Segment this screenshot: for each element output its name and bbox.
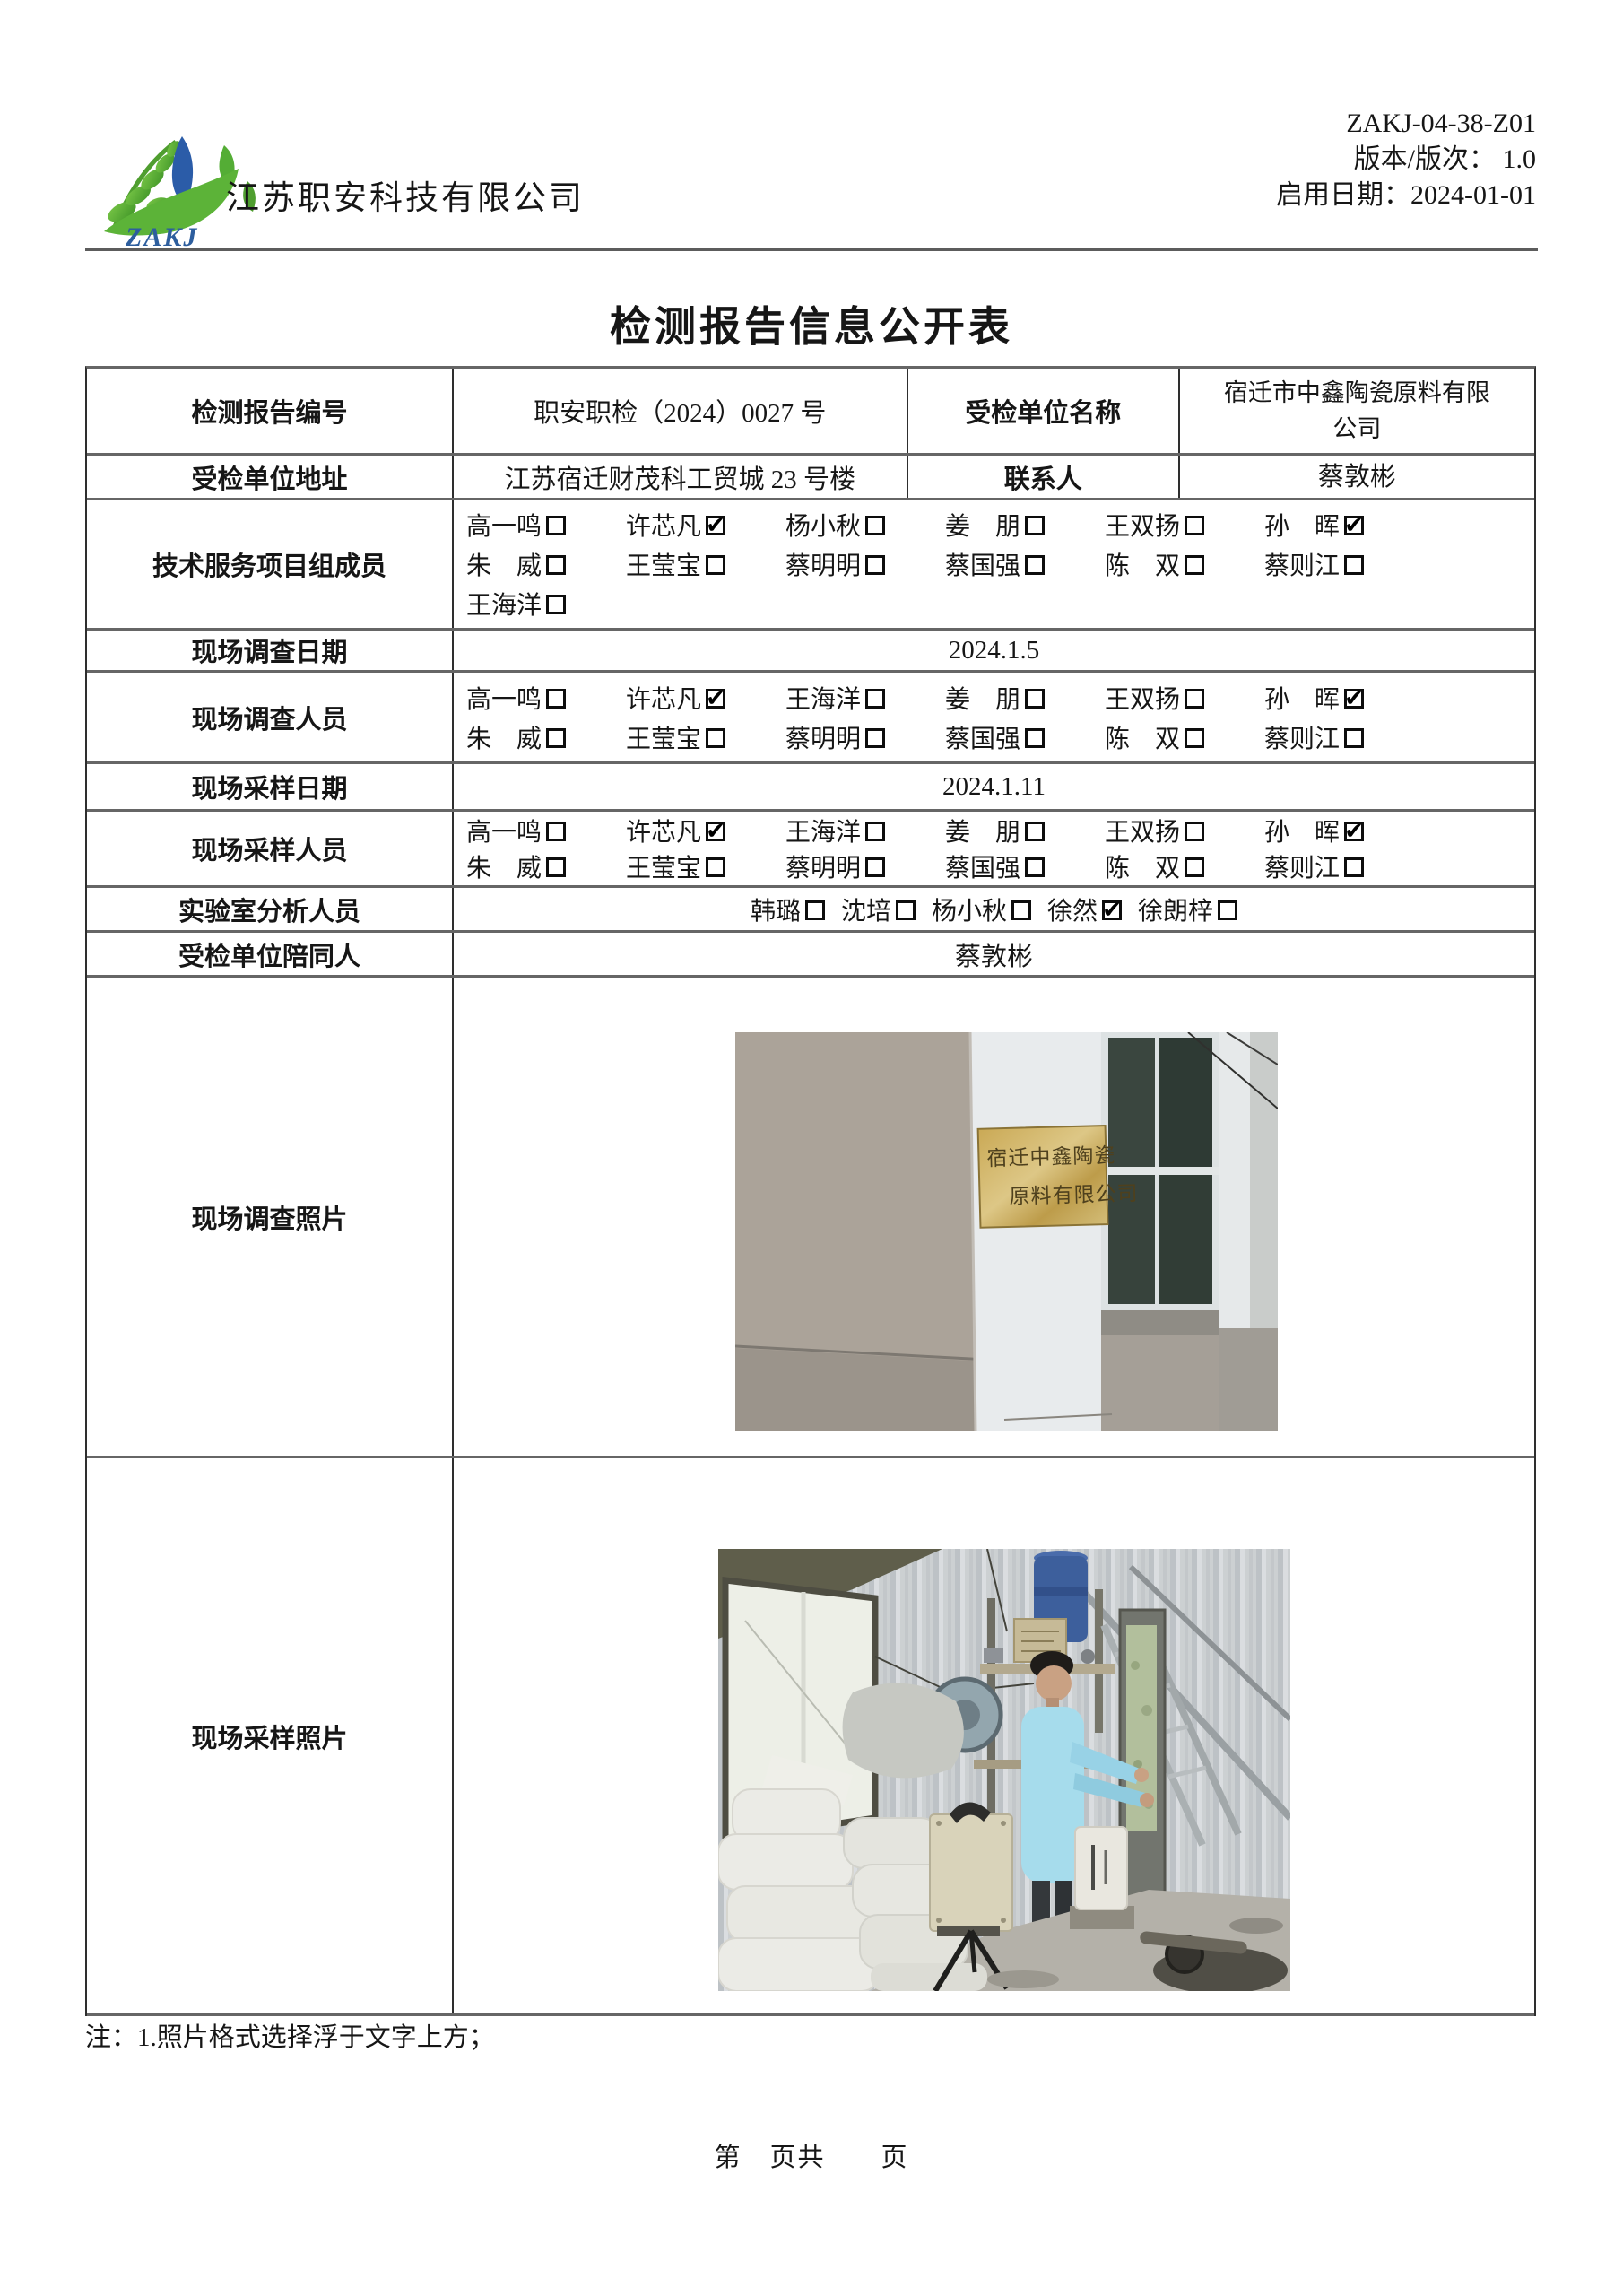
member-item: 蔡国强 [945,719,1105,755]
survey-photo-cell: 宿迁中鑫陶瓷 原料有限公司 [454,978,1534,1456]
row-label-survey-staff: 现场调查人员 [87,673,454,761]
checkbox-unchecked [865,689,885,709]
checkbox-unchecked [1185,728,1204,748]
row-label-escort: 受检单位陪同人 [87,933,454,975]
member-item: 杨小秋 [932,891,1031,927]
member-name: 陈 双 [1105,848,1180,884]
checkbox-line: 高一鸣许芯凡✔王海洋姜 朋王双扬孙 晖✔ [454,813,1534,848]
member-name: 徐然 [1047,891,1098,927]
member-name: 朱 威 [466,719,542,755]
member-item: 王海洋 [785,813,945,848]
row-label-survey-date: 现场调查日期 [87,631,454,670]
member-name: 王莹宝 [626,719,701,755]
member-name: 蔡国强 [945,719,1020,755]
checkbox-line: 朱 威王莹宝蔡明明蔡国强陈 双蔡则江 [454,848,1534,884]
checkbox-line: 王海洋 [454,584,1534,623]
member-name: 高一鸣 [466,813,542,848]
member-item: 蔡则江 [1264,546,1424,582]
checkbox-unchecked [1025,822,1045,841]
survey-staff-checklist: 高一鸣许芯凡✔王海洋姜 朋王双扬孙 晖✔朱 威王莹宝蔡明明蔡国强陈 双蔡则江 [454,673,1534,761]
member-item: 孙 晖✔ [1264,680,1424,716]
info-table: 检测报告编号 职安职检（2024）0027 号 受检单位名称 宿迁市中鑫陶瓷原料… [85,366,1536,2016]
member-item: 蔡国强 [945,848,1105,884]
table-row: 受检单位地址 江苏宿迁财茂科工贸城 23 号楼 联系人 蔡敦彬 [87,456,1534,500]
checkbox-unchecked [865,822,885,841]
member-item: 许芯凡✔ [626,507,785,543]
member-name: 王莹宝 [626,848,701,884]
table-row: 现场采样人员 高一鸣许芯凡✔王海洋姜 朋王双扬孙 晖✔朱 威王莹宝蔡明明蔡国强陈… [87,812,1534,888]
row-label-lab-staff: 实验室分析人员 [87,888,454,930]
checkbox-unchecked [1185,689,1204,709]
member-item: 高一鸣 [466,507,626,543]
checkbox-unchecked [1025,516,1045,535]
member-item: 王海洋 [466,586,626,622]
checkbox-unchecked [1025,857,1045,877]
checkbox-unchecked [1344,728,1364,748]
member-item: 徐朗梓 [1138,891,1237,927]
checkbox-line: 高一鸣许芯凡✔王海洋姜 朋王双扬孙 晖✔ [454,678,1534,717]
member-item: 蔡明明 [785,848,945,884]
doc-version: 版本/版次： 1.0 [1276,142,1536,178]
member-name: 沈培 [841,891,891,927]
member-name: 许芯凡 [626,813,701,848]
checkbox-unchecked [1344,857,1364,877]
member-name: 王海洋 [785,813,861,848]
table-row: 现场调查照片 [87,978,1534,1458]
member-name: 蔡明明 [785,848,861,884]
member-name: 王双扬 [1105,680,1180,716]
unit-name-value: 宿迁市中鑫陶瓷原料有限公司 [1180,369,1534,453]
checkbox-line: 朱 威王莹宝蔡明明蔡国强陈 双蔡则江 [454,717,1534,757]
member-name: 高一鸣 [466,507,542,543]
document-meta: ZAKJ-04-38-Z01 版本/版次： 1.0 启用日期：2024-01-0… [1276,106,1536,213]
survey-photo-graphic: 宿迁中鑫陶瓷 原料有限公司 [735,1032,1278,1431]
member-item: 姜 朋 [945,507,1105,543]
checkbox-line: 韩璐沈培杨小秋徐然✔徐朗梓 [454,890,1534,929]
member-item: 高一鸣 [466,680,626,716]
member-item: 蔡明明 [785,719,945,755]
escort-value: 蔡敦彬 [454,933,1534,975]
member-name: 王双扬 [1105,813,1180,848]
member-name: 杨小秋 [785,507,861,543]
table-row: 技术服务项目组成员 高一鸣许芯凡✔杨小秋姜 朋王双扬孙 晖✔朱 威王莹宝蔡明明蔡… [87,500,1534,631]
checkbox-unchecked [706,857,725,877]
checkbox-checked: ✔ [1102,900,1122,920]
checkbox-unchecked [1185,822,1204,841]
doc-start-date: 启用日期：2024-01-01 [1276,178,1536,213]
member-item: 陈 双 [1105,848,1264,884]
checkbox-unchecked [1218,900,1237,920]
row-label-report-no: 检测报告编号 [87,369,454,453]
member-item: 蔡国强 [945,546,1105,582]
checkbox-line: 高一鸣许芯凡✔杨小秋姜 朋王双扬孙 晖✔ [454,505,1534,544]
member-item: 王莹宝 [626,546,785,582]
table-row: 受检单位陪同人 蔡敦彬 [87,933,1534,978]
member-name: 蔡则江 [1264,546,1340,582]
doc-code: ZAKJ-04-38-Z01 [1276,106,1536,142]
plaque-line2: 原料有限公司 [1009,1182,1139,1208]
row-label-contact: 联系人 [908,456,1180,498]
member-item: 孙 晖✔ [1264,813,1424,848]
lab-staff-checklist: 韩璐沈培杨小秋徐然✔徐朗梓 [454,888,1534,930]
checkbox-checked: ✔ [706,822,725,841]
member-item: 陈 双 [1105,719,1264,755]
member-item: 孙 晖✔ [1264,507,1424,543]
member-item: 许芯凡✔ [626,813,785,848]
checkbox-unchecked [805,900,825,920]
member-item: 徐然✔ [1047,891,1122,927]
checkbox-unchecked [1025,728,1045,748]
checkbox-unchecked [1025,555,1045,575]
member-item: 朱 威 [466,719,626,755]
row-label-tech-members: 技术服务项目组成员 [87,500,454,628]
checkbox-checked: ✔ [1344,516,1364,535]
table-row: 现场采样日期 2024.1.11 [87,764,1534,812]
checkbox-unchecked [1185,516,1204,535]
member-name: 许芯凡 [626,507,701,543]
checkbox-unchecked [706,728,725,748]
member-name: 高一鸣 [466,680,542,716]
member-name: 王海洋 [785,680,861,716]
member-item: 王莹宝 [626,719,785,755]
member-name: 姜 朋 [945,813,1020,848]
checkbox-unchecked [546,728,566,748]
row-label-sampling-photo: 现场采样照片 [87,1458,454,2013]
contact-value: 蔡敦彬 [1180,456,1534,498]
member-item: 蔡则江 [1264,719,1424,755]
member-name: 朱 威 [466,546,542,582]
row-label-sampling-date: 现场采样日期 [87,764,454,809]
checkbox-checked: ✔ [706,516,725,535]
checkbox-unchecked [865,857,885,877]
member-name: 蔡则江 [1264,848,1340,884]
checkbox-line: 朱 威王莹宝蔡明明蔡国强陈 双蔡则江 [454,544,1534,584]
member-name: 徐朗梓 [1138,891,1213,927]
checkbox-checked: ✔ [706,689,725,709]
header-rule [85,248,1538,251]
member-name: 杨小秋 [932,891,1007,927]
member-item: 蔡明明 [785,546,945,582]
member-item: 韩璐 [751,891,825,927]
checkbox-unchecked [865,516,885,535]
survey-date-value: 2024.1.5 [454,631,1534,670]
member-item: 陈 双 [1105,546,1264,582]
checkbox-unchecked [865,728,885,748]
table-row: 现场采样照片 [87,1458,1534,2016]
survey-photo: 宿迁中鑫陶瓷 原料有限公司 [735,1032,1278,1431]
member-name: 孙 晖 [1264,813,1340,848]
member-item: 蔡则江 [1264,848,1424,884]
sampling-staff-checklist: 高一鸣许芯凡✔王海洋姜 朋王双扬孙 晖✔朱 威王莹宝蔡明明蔡国强陈 双蔡则江 [454,812,1534,885]
plaque-line1: 宿迁中鑫陶瓷 [986,1144,1116,1170]
table-row: 现场调查日期 2024.1.5 [87,631,1534,673]
checkbox-unchecked [546,689,566,709]
checkbox-unchecked [896,900,916,920]
checkbox-unchecked [1185,555,1204,575]
member-item: 朱 威 [466,848,626,884]
sampling-photo-graphic [718,1549,1290,1991]
member-name: 韩璐 [751,891,801,927]
document-page: ZAKJ 江苏职安科技有限公司 ZAKJ-04-38-Z01 版本/版次： 1.… [0,0,1623,2296]
member-name: 王海洋 [466,586,542,622]
member-name: 姜 朋 [945,680,1020,716]
member-item: 王双扬 [1105,680,1264,716]
checkbox-checked: ✔ [1344,822,1364,841]
member-name: 朱 威 [466,848,542,884]
member-item: 王双扬 [1105,813,1264,848]
checkbox-unchecked [706,555,725,575]
member-item: 王海洋 [785,680,945,716]
member-name: 孙 晖 [1264,680,1340,716]
member-item: 姜 朋 [945,813,1105,848]
page-title: 检测报告信息公开表 [0,294,1623,353]
checkbox-unchecked [546,595,566,614]
row-label-survey-photo: 现场调查照片 [87,978,454,1456]
member-name: 孙 晖 [1264,507,1340,543]
member-item: 高一鸣 [466,813,626,848]
row-label-unit-addr: 受检单位地址 [87,456,454,498]
member-item: 王莹宝 [626,848,785,884]
member-name: 蔡明明 [785,546,861,582]
checkbox-checked: ✔ [1344,689,1364,709]
page-number-line: 第 页共 页 [0,2136,1623,2174]
member-item: 杨小秋 [785,507,945,543]
footnote: 注：1.照片格式选择浮于文字上方； [85,2016,495,2054]
member-item: 姜 朋 [945,680,1105,716]
member-name: 姜 朋 [945,507,1020,543]
table-row: 现场调查人员 高一鸣许芯凡✔王海洋姜 朋王双扬孙 晖✔朱 威王莹宝蔡明明蔡国强陈… [87,673,1534,764]
company-name: 江苏职安科技有限公司 [226,170,585,219]
checkbox-unchecked [546,822,566,841]
member-name: 陈 双 [1105,719,1180,755]
checkbox-unchecked [546,555,566,575]
member-item: 朱 威 [466,546,626,582]
member-name: 陈 双 [1105,546,1180,582]
table-row: 实验室分析人员 韩璐沈培杨小秋徐然✔徐朗梓 [87,888,1534,933]
member-name: 蔡则江 [1264,719,1340,755]
table-row: 检测报告编号 职安职检（2024）0027 号 受检单位名称 宿迁市中鑫陶瓷原料… [87,369,1534,456]
sampling-date-value: 2024.1.11 [454,764,1534,809]
member-name: 蔡国强 [945,848,1020,884]
member-name: 王莹宝 [626,546,701,582]
member-name: 许芯凡 [626,680,701,716]
checkbox-unchecked [546,516,566,535]
checkbox-unchecked [1011,900,1031,920]
member-item: 王双扬 [1105,507,1264,543]
member-item: 许芯凡✔ [626,680,785,716]
member-item: 沈培 [841,891,916,927]
checkbox-unchecked [1344,555,1364,575]
row-label-unit-name: 受检单位名称 [908,369,1180,453]
member-name: 蔡明明 [785,719,861,755]
unit-addr-value: 江苏宿迁财茂科工贸城 23 号楼 [454,456,908,498]
member-name: 王双扬 [1105,507,1180,543]
checkbox-unchecked [546,857,566,877]
tech-members-checklist: 高一鸣许芯凡✔杨小秋姜 朋王双扬孙 晖✔朱 威王莹宝蔡明明蔡国强陈 双蔡则江王海… [454,500,1534,628]
sampling-photo [718,1549,1290,1991]
member-name: 蔡国强 [945,546,1020,582]
checkbox-unchecked [1025,689,1045,709]
checkbox-unchecked [865,555,885,575]
sampling-photo-cell [454,1458,1534,2013]
checkbox-unchecked [1185,857,1204,877]
row-label-sampling-staff: 现场采样人员 [87,812,454,885]
report-no-value: 职安职检（2024）0027 号 [454,369,908,453]
